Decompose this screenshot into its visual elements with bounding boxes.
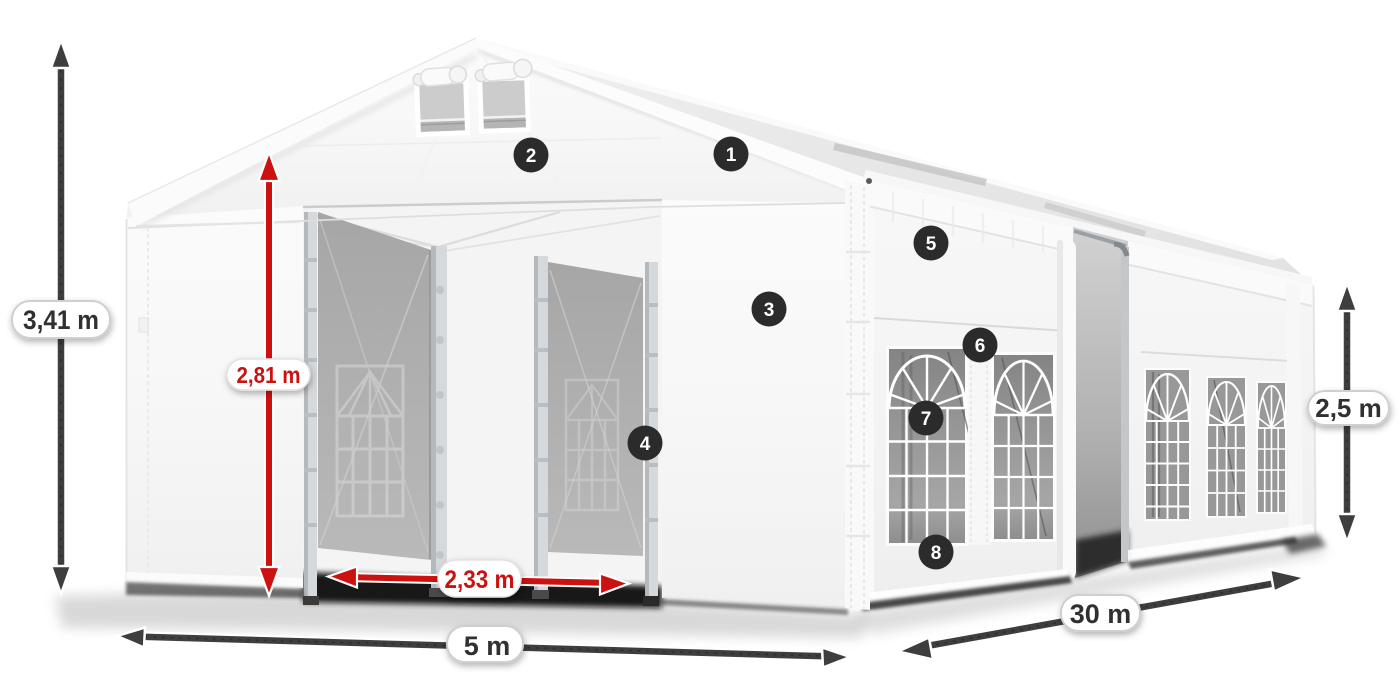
svg-text:4: 4	[640, 434, 651, 455]
svg-text:5: 5	[926, 234, 937, 255]
svg-text:5 m: 5 m	[464, 631, 511, 661]
svg-text:6: 6	[975, 336, 986, 357]
svg-text:30 m: 30 m	[1070, 599, 1132, 629]
svg-text:7: 7	[921, 409, 932, 430]
svg-text:2: 2	[526, 146, 537, 167]
svg-text:2,81 m: 2,81 m	[237, 362, 301, 388]
svg-text:1: 1	[726, 145, 737, 166]
svg-text:2,33 m: 2,33 m	[445, 566, 515, 594]
svg-text:8: 8	[931, 543, 942, 564]
svg-text:3: 3	[764, 300, 775, 321]
svg-text:3,41 m: 3,41 m	[23, 305, 99, 335]
svg-text:2,5 m: 2,5 m	[1315, 393, 1382, 423]
